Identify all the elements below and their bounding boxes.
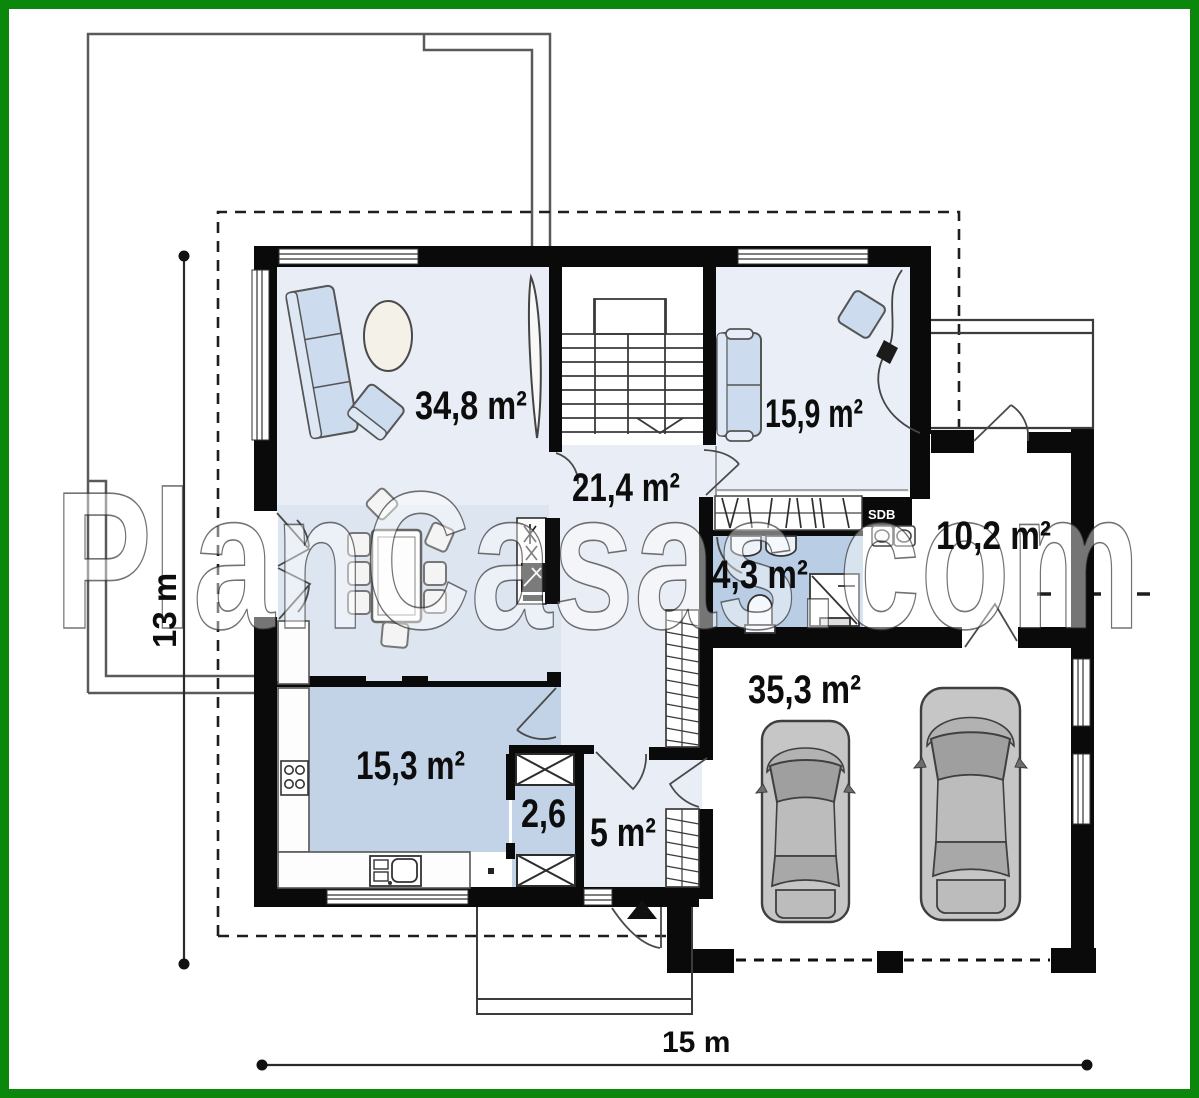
svg-text:21,4 m²: 21,4 m² xyxy=(572,466,680,510)
svg-text:13 m: 13 m xyxy=(146,573,183,648)
svg-text:4,3 m²: 4,3 m² xyxy=(712,553,808,597)
svg-text:2,6: 2,6 xyxy=(521,792,566,836)
svg-text:10,2 m²: 10,2 m² xyxy=(936,514,1051,558)
svg-text:35,3 m²: 35,3 m² xyxy=(748,668,861,712)
svg-text:15 m: 15 m xyxy=(662,1026,730,1059)
svg-text:15,9 m²: 15,9 m² xyxy=(765,392,863,436)
svg-text:15,3 m²: 15,3 m² xyxy=(356,744,465,788)
svg-text:34,8 m²: 34,8 m² xyxy=(415,384,527,428)
svg-text:5 m²: 5 m² xyxy=(590,811,656,855)
